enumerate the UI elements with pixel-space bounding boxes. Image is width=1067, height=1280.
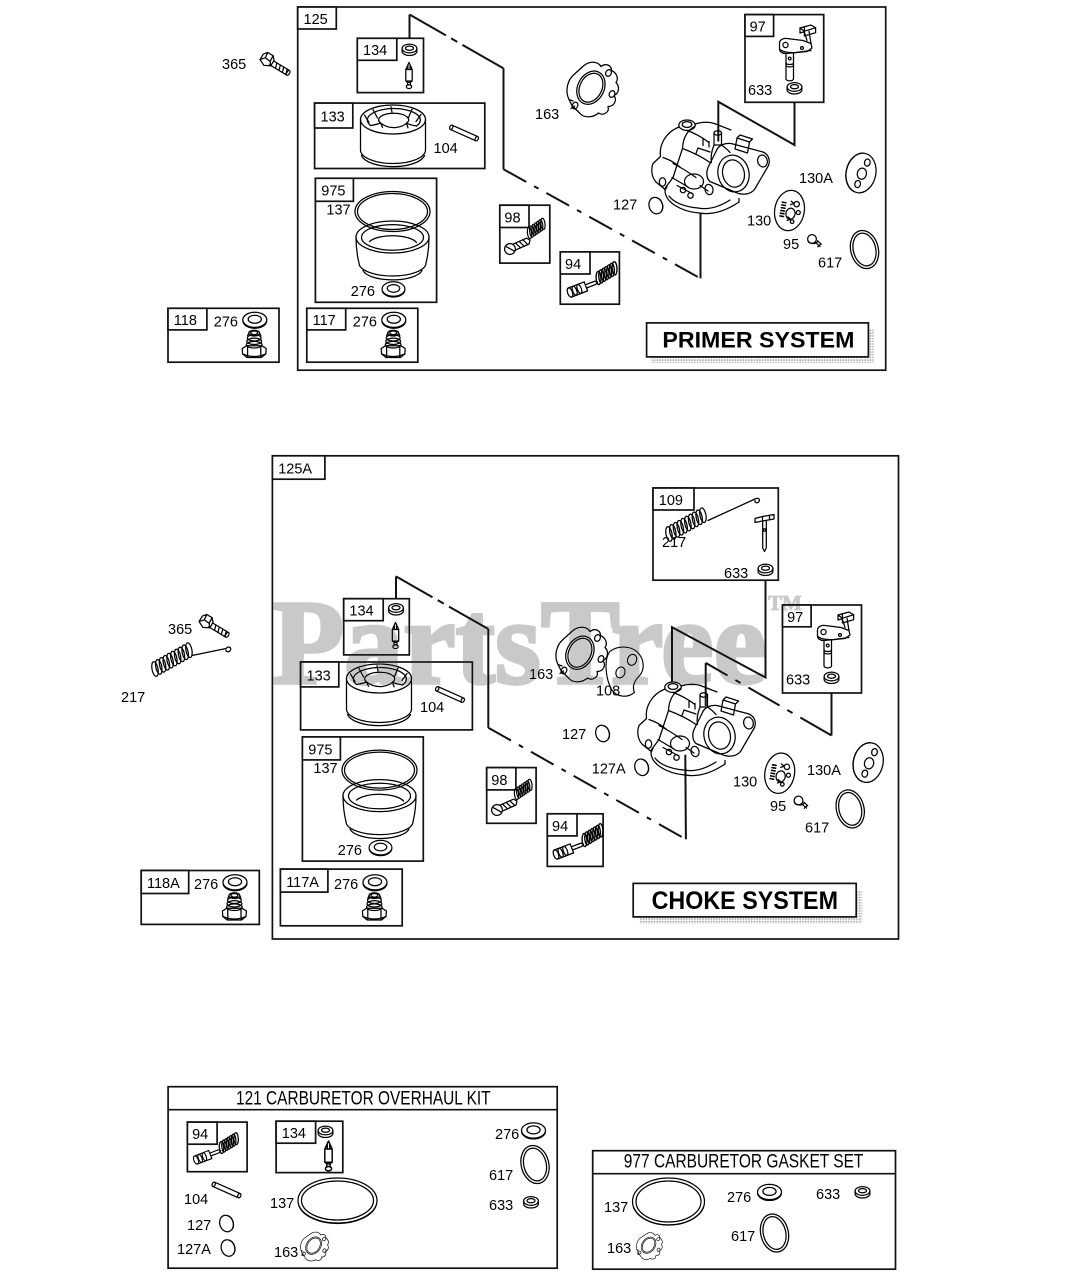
svg-text:97: 97 bbox=[750, 20, 766, 36]
svg-text:276: 276 bbox=[495, 1127, 519, 1143]
svg-text:125: 125 bbox=[304, 12, 328, 28]
svg-text:134: 134 bbox=[363, 43, 387, 59]
svg-text:163: 163 bbox=[535, 107, 559, 123]
svg-text:104: 104 bbox=[184, 1192, 208, 1208]
svg-text:127A: 127A bbox=[592, 762, 626, 778]
svg-text:276: 276 bbox=[334, 877, 358, 893]
svg-text:94: 94 bbox=[192, 1127, 208, 1143]
svg-text:633: 633 bbox=[816, 1187, 840, 1203]
svg-text:118: 118 bbox=[174, 313, 197, 329]
svg-text:217: 217 bbox=[662, 535, 686, 551]
svg-text:276: 276 bbox=[214, 315, 238, 331]
svg-text:617: 617 bbox=[731, 1229, 755, 1245]
svg-text:95: 95 bbox=[783, 237, 799, 253]
svg-text:109: 109 bbox=[659, 493, 683, 509]
svg-text:130: 130 bbox=[733, 775, 757, 791]
svg-text:94: 94 bbox=[565, 257, 581, 273]
svg-text:125A: 125A bbox=[278, 462, 312, 478]
svg-text:121 CARBURETOR OVERHAUL KIT: 121 CARBURETOR OVERHAUL KIT bbox=[236, 1089, 491, 1110]
svg-text:127: 127 bbox=[613, 198, 637, 214]
svg-text:617: 617 bbox=[489, 1168, 513, 1184]
svg-text:276: 276 bbox=[194, 877, 218, 893]
svg-text:163: 163 bbox=[607, 1241, 631, 1257]
svg-text:633: 633 bbox=[786, 673, 810, 689]
svg-text:94: 94 bbox=[552, 819, 568, 835]
svg-text:98: 98 bbox=[504, 211, 520, 227]
svg-text:95: 95 bbox=[770, 799, 786, 815]
svg-text:130: 130 bbox=[747, 214, 771, 230]
svg-text:977 CARBURETOR GASKET SET: 977 CARBURETOR GASKET SET bbox=[624, 1152, 864, 1173]
svg-text:137: 137 bbox=[326, 203, 350, 219]
svg-text:PRIMER SYSTEM: PRIMER SYSTEM bbox=[662, 328, 854, 353]
svg-text:117A: 117A bbox=[286, 875, 319, 891]
svg-text:975: 975 bbox=[321, 184, 345, 200]
svg-text:217: 217 bbox=[121, 690, 145, 706]
svg-text:617: 617 bbox=[818, 256, 842, 272]
svg-text:276: 276 bbox=[338, 843, 362, 859]
svg-text:633: 633 bbox=[748, 83, 772, 99]
svg-text:TM: TM bbox=[768, 591, 802, 615]
svg-text:104: 104 bbox=[434, 141, 458, 157]
svg-text:PartsTree: PartsTree bbox=[272, 576, 766, 710]
svg-text:130A: 130A bbox=[799, 171, 833, 187]
svg-text:127: 127 bbox=[562, 727, 586, 743]
svg-text:276: 276 bbox=[353, 315, 377, 331]
svg-text:137: 137 bbox=[270, 1196, 294, 1212]
svg-text:137: 137 bbox=[604, 1200, 628, 1216]
svg-text:975: 975 bbox=[308, 742, 332, 758]
svg-text:163: 163 bbox=[274, 1245, 298, 1261]
svg-text:365: 365 bbox=[168, 622, 192, 638]
svg-text:130A: 130A bbox=[807, 763, 841, 779]
svg-text:134: 134 bbox=[282, 1126, 306, 1142]
svg-text:617: 617 bbox=[805, 821, 829, 837]
svg-text:276: 276 bbox=[351, 284, 375, 300]
svg-text:CHOKE SYSTEM: CHOKE SYSTEM bbox=[652, 887, 838, 915]
svg-text:276: 276 bbox=[727, 1190, 751, 1206]
svg-text:365: 365 bbox=[222, 57, 246, 73]
svg-text:98: 98 bbox=[491, 773, 507, 789]
svg-text:133: 133 bbox=[321, 110, 345, 126]
svg-text:127A: 127A bbox=[177, 1242, 211, 1258]
svg-text:118A: 118A bbox=[147, 876, 180, 892]
svg-text:117: 117 bbox=[313, 313, 336, 329]
svg-text:127: 127 bbox=[187, 1218, 211, 1234]
svg-text:137: 137 bbox=[313, 761, 337, 777]
svg-text:633: 633 bbox=[489, 1198, 513, 1214]
